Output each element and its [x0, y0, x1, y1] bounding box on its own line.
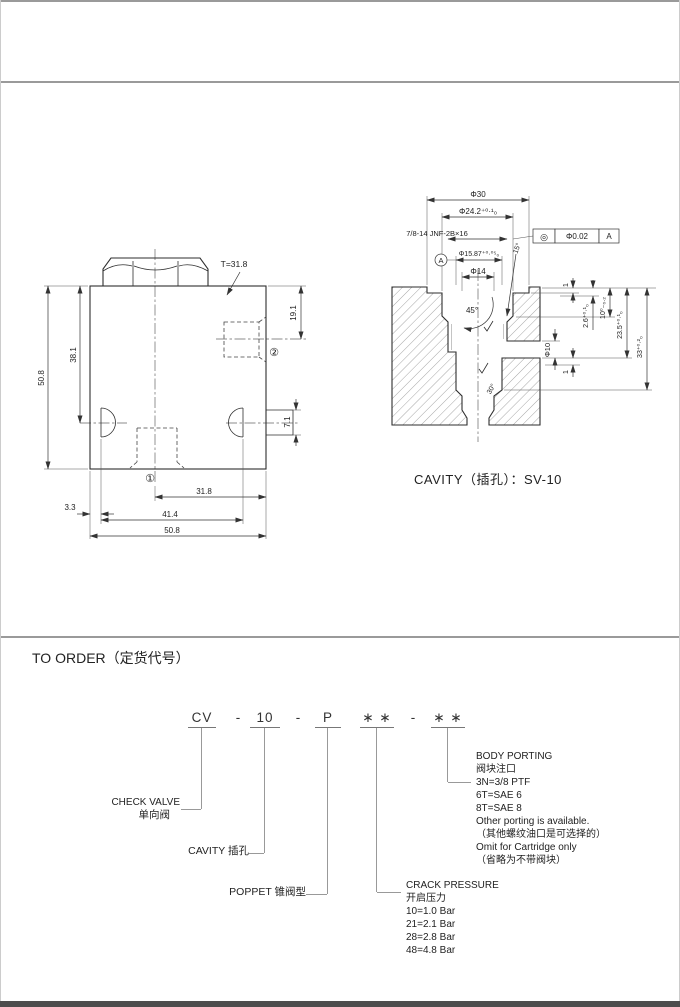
order-section-title: TO ORDER（定货代号） — [32, 648, 190, 668]
check-valve-label: CHECK VALVE 单向阀 — [95, 796, 180, 822]
cavity-section-view: ◎ Φ0.02 A Φ30 Φ24.2⁺⁰·¹₀ 7/8-14 JNF-2B×1… — [392, 190, 656, 442]
poppet-label: POPPET 锥阀型 — [225, 886, 306, 899]
crack-option: 48=4.8 Bar — [406, 944, 499, 957]
left-view-dimensions — [44, 272, 306, 539]
dim-d30: Φ30 — [470, 190, 486, 199]
dim-7-1: 7.1 — [283, 416, 292, 428]
porting-option: 8T=SAE 8 — [476, 802, 606, 815]
code-dash-1: - — [231, 710, 245, 727]
crack-option: 10=1.0 Bar — [406, 905, 499, 918]
dim-d10: Φ10 — [543, 343, 552, 357]
feature-control-frame: ◎ Φ0.02 A — [533, 229, 619, 243]
left-view-labels: T=31.8 50.8 38.1 19.1 7.1 ① ② 31.8 3.3 4… — [37, 259, 298, 535]
thread-spec: 7/8-14 JNF-2B×16 — [406, 229, 468, 238]
dim-1-top: 1 — [561, 283, 570, 287]
crack-pressure-zh: 开启压力 — [406, 892, 499, 905]
page-bottom-bar — [0, 1001, 680, 1007]
leader-poppet-h — [306, 894, 327, 895]
porting-note: （省略为不带阀块） — [476, 854, 606, 867]
check-valve-zh: 单向阀 — [95, 809, 180, 822]
page-top-rule — [0, 0, 680, 2]
code-part-porting: ∗ ∗ — [431, 710, 465, 728]
porting-note: Other porting is available. — [476, 815, 606, 828]
code-part-10: 10 — [250, 710, 280, 728]
port-2-balloon: ② — [269, 347, 279, 359]
datum-a-label: A — [438, 256, 443, 265]
leader-cavity-h — [249, 853, 264, 854]
dim-d15-87: Φ15.87⁺⁰·⁰⁵₀ — [459, 250, 500, 258]
dim-10-depth: 10⁰₋₀.₂ — [599, 297, 607, 319]
concentricity-icon: ◎ — [540, 232, 548, 242]
body-outline — [90, 286, 293, 469]
dim-2-6: 2.6⁺⁰·¹₀ — [582, 304, 590, 328]
body-porting-zh: 阀块注口 — [476, 763, 606, 776]
port-1-hidden — [130, 428, 184, 468]
port-1-balloon: ① — [145, 473, 155, 485]
technical-drawings: T=31.8 50.8 38.1 19.1 7.1 ① ② 31.8 3.3 4… — [0, 82, 680, 638]
leader-cavity — [264, 728, 265, 853]
hidden-ports — [130, 317, 266, 468]
code-dash-3: - — [406, 710, 420, 727]
dim-23-5: 23.5⁺⁰·¹₀ — [616, 311, 624, 339]
crack-pressure-block: CRACK PRESSURE 开启压力 10=1.0 Bar 21=2.1 Ba… — [406, 879, 499, 957]
hex-head — [103, 258, 208, 286]
code-part-crack: ∗ ∗ — [360, 710, 394, 728]
code-part-cv: CV — [188, 710, 216, 728]
fcf-datum: A — [606, 232, 612, 241]
porting-option: 3N=3/8 PTF — [476, 776, 606, 789]
leader-porting — [447, 728, 448, 782]
porting-note: （其他螺纹油口是可选择的） — [476, 828, 606, 841]
dim-3-3: 3.3 — [64, 503, 76, 512]
code-dash-2: - — [291, 710, 305, 727]
dim-31-8: 31.8 — [196, 487, 212, 496]
t-dimension-label: T=31.8 — [221, 259, 248, 269]
porting-note: Omit for Cartridge only — [476, 841, 606, 854]
cavity-caption: CAVITY（插孔）：SV-10 — [414, 469, 562, 488]
fcf-tolerance: Φ0.02 — [566, 232, 589, 241]
leader-crack-h — [377, 892, 401, 893]
code-part-p: P — [315, 710, 341, 728]
check-valve-en: CHECK VALVE — [95, 796, 180, 809]
port-2-hidden — [224, 317, 266, 362]
leader-check-valve — [201, 728, 202, 809]
body-porting-en: BODY PORTING — [476, 750, 606, 763]
dim-33: 33⁺⁰·²₀ — [636, 336, 644, 358]
valve-body-view: T=31.8 50.8 38.1 19.1 7.1 ① ② 31.8 3.3 4… — [37, 249, 306, 539]
dim-50-8-horizontal: 50.8 — [164, 526, 180, 535]
leader-poppet — [327, 728, 328, 894]
dim-1-bottom: 1 — [561, 370, 570, 374]
dim-38-1: 38.1 — [69, 347, 78, 363]
dim-19-1: 19.1 — [289, 305, 298, 321]
crack-option: 28=2.8 Bar — [406, 931, 499, 944]
porting-option: 6T=SAE 6 — [476, 789, 606, 802]
leader-crack — [376, 728, 377, 892]
leader-check-valve-h — [181, 809, 201, 810]
cavity-code-label: CAVITY 插孔 — [170, 845, 249, 858]
leader-porting-h — [448, 782, 471, 783]
crack-option: 21=2.1 Bar — [406, 918, 499, 931]
dim-50-8-vertical: 50.8 — [37, 370, 46, 386]
dim-d24-2: Φ24.2⁺⁰·¹₀ — [459, 207, 497, 216]
angle-45: 45° — [466, 306, 478, 315]
body-porting-block: BODY PORTING 阀块注口 3N=3/8 PTF 6T=SAE 6 8T… — [476, 750, 606, 867]
dim-41-4: 41.4 — [162, 510, 178, 519]
crack-pressure-en: CRACK PRESSURE — [406, 879, 499, 892]
dim-d14: Φ14 — [470, 267, 486, 276]
